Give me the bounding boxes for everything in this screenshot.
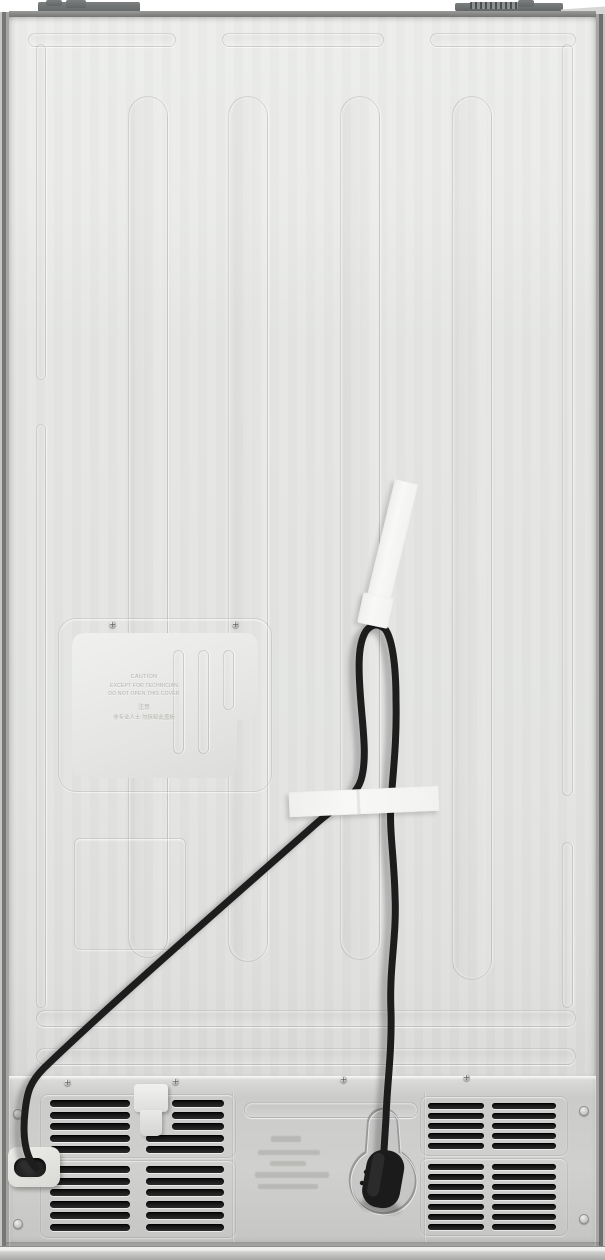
cord-shadow xyxy=(18,629,390,1172)
masking-tape-fold xyxy=(357,592,394,629)
power-cord xyxy=(24,625,396,1168)
power-cord-layer xyxy=(0,0,605,1260)
refrigerator-back-photo: CAUTION EXCEPT FOR TECHNICIAN DO NOT OPE… xyxy=(0,0,605,1260)
